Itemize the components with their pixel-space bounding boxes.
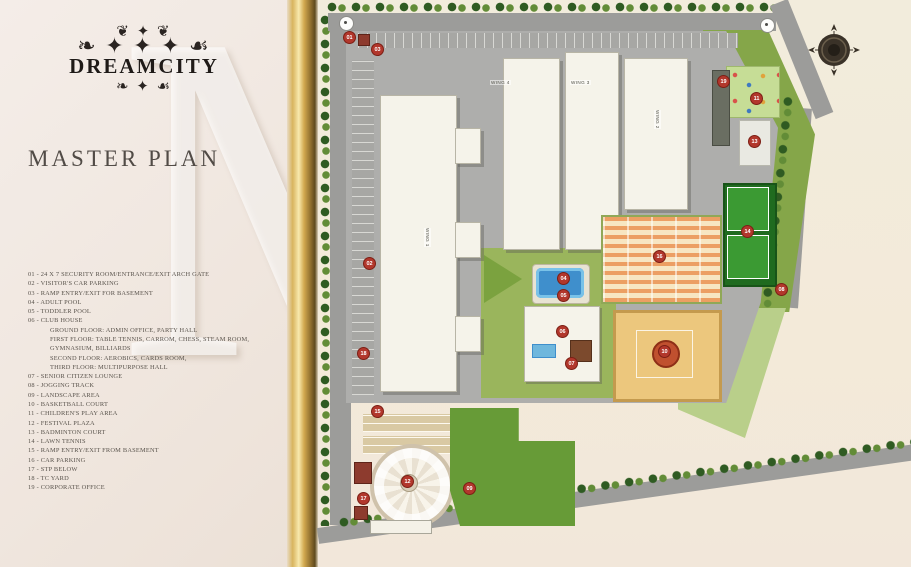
map-marker-09: 09 (463, 482, 476, 495)
gate-marker-icon (760, 18, 775, 33)
building-wing-4 (503, 58, 560, 250)
map-marker-11: 11 (750, 92, 763, 105)
entrance-gate (370, 520, 432, 534)
legend-subitem: GYMNASIUM, BILLIARDS (28, 344, 263, 353)
parking-strip (352, 60, 374, 395)
parking-strip (358, 33, 738, 48)
map-marker-16: 16 (653, 250, 666, 263)
map-marker-02: 02 (363, 257, 376, 270)
legend-item: 05 - TODDLER POOL (28, 307, 263, 316)
page-title: MASTER PLAN (28, 146, 220, 172)
clubhouse-indoor-pool (532, 344, 556, 358)
map-marker-05: 05 (557, 289, 570, 302)
gate-marker-icon (339, 16, 354, 31)
arch-gate-icon (358, 34, 370, 46)
wing-label: WING 4 (490, 80, 511, 85)
brand-name: DREAMCITY (0, 54, 288, 79)
map-marker-14: 14 (741, 225, 754, 238)
map-marker-10: 10 (658, 345, 671, 358)
legend-item: 08 - JOGGING TRACK (28, 381, 263, 390)
map-marker-08: 08 (775, 283, 788, 296)
wing-label: WING 2 (654, 110, 661, 129)
building-annex (455, 128, 481, 164)
compass-rose-icon (806, 22, 862, 78)
brochure-page: M ❦ ✦ ❦ ❧ ✦ ✦ ✦ ☙ DREAMCITY ❧ ✦ ☙ MASTER… (0, 0, 911, 567)
map-marker-19: 19 (717, 75, 730, 88)
legend: 01 - 24 X 7 SECURITY ROOM/ENTRANCE/EXIT … (28, 270, 263, 493)
building-annex (455, 222, 481, 258)
brand-logo: ❦ ✦ ❦ ❧ ✦ ✦ ✦ ☙ DREAMCITY ❧ ✦ ☙ (0, 26, 288, 94)
map-marker-04: 04 (557, 272, 570, 285)
building-wing-2 (624, 58, 688, 210)
map-marker-18: 18 (357, 347, 370, 360)
utility-block (354, 506, 368, 520)
legend-item: 04 - ADULT POOL (28, 298, 263, 307)
wing-label: WING 3 (570, 80, 591, 85)
building-wing-1 (380, 95, 457, 392)
legend-item: 12 - FESTIVAL PLAZA (28, 419, 263, 428)
legend-subitem: SECOND FLOOR: AEROBICS, CARDS ROOM, (28, 354, 263, 363)
legend-item: 02 - VISITOR'S CAR PARKING (28, 279, 263, 288)
map-marker-01: 01 (343, 31, 356, 44)
legend-item: 07 - SENIOR CITIZEN LOUNGE (28, 372, 263, 381)
top-road (328, 13, 776, 31)
legend-item: 14 - LAWN TENNIS (28, 437, 263, 446)
legend-item: 17 - STP BELOW (28, 465, 263, 474)
legend-item: 11 - CHILDREN'S PLAY AREA (28, 409, 263, 418)
legend-item: 01 - 24 X 7 SECURITY ROOM/ENTRANCE/EXIT … (28, 270, 263, 279)
legend-item: 15 - RAMP ENTRY/EXIT FROM BASEMENT (28, 446, 263, 455)
map-marker-07: 07 (565, 357, 578, 370)
left-panel: M ❦ ✦ ❦ ❧ ✦ ✦ ✦ ☙ DREAMCITY ❧ ✦ ☙ MASTER… (0, 0, 288, 567)
logo-ornament-icon: ❧ ✦ ☙ (0, 81, 288, 94)
map-marker-17: 17 (357, 492, 370, 505)
map-marker-06: 06 (556, 325, 569, 338)
building-annex (455, 316, 481, 352)
legend-item: 16 - CAR PARKING (28, 456, 263, 465)
utility-block (354, 462, 372, 484)
legend-item: 03 - RAMP ENTRY/EXIT FOR BASEMENT (28, 289, 263, 298)
tree-row (326, 0, 776, 14)
tennis-court (727, 235, 769, 279)
legend-item: 10 - BASKETBALL COURT (28, 400, 263, 409)
lawn-area (450, 408, 575, 526)
wing-label: WING 1 (424, 228, 431, 247)
gold-spine-divider (287, 0, 318, 567)
legend-item: 06 - CLUB HOUSE (28, 316, 263, 325)
legend-item: 09 - LANDSCAPE AREA (28, 391, 263, 400)
site-plan: 01030218150405060716101419111308120917WI… (318, 0, 911, 567)
legend-item: 13 - BADMINTON COURT (28, 428, 263, 437)
legend-item: 19 - CORPORATE OFFICE (28, 483, 263, 492)
legend-item: 18 - TC YARD (28, 474, 263, 483)
map-marker-12: 12 (401, 475, 414, 488)
legend-subitem: GROUND FLOOR: ADMIN OFFICE, PARTY HALL (28, 326, 263, 335)
map-marker-15: 15 (371, 405, 384, 418)
map-marker-13: 13 (748, 135, 761, 148)
legend-subitem: FIRST FLOOR: TABLE TENNIS, CARROM, CHESS… (28, 335, 263, 344)
map-marker-03: 03 (371, 43, 384, 56)
logo-ornament-icon: ❧ ✦ ✦ ✦ ☙ (0, 39, 288, 52)
legend-subitem: THIRD FLOOR: MULTIPURPOSE HALL (28, 363, 263, 372)
